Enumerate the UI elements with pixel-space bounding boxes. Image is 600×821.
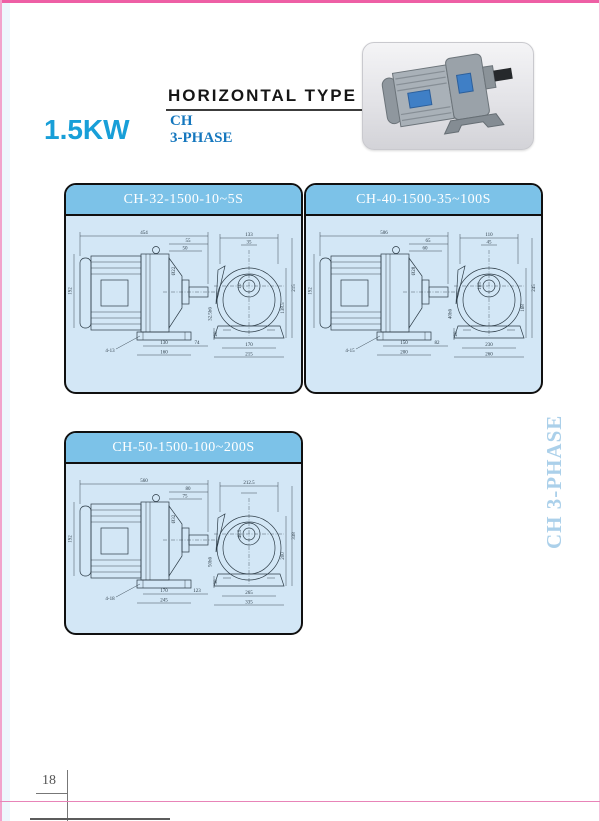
- page-heading: HORIZONTAL TYPE: [168, 86, 357, 106]
- panel-ch32: CH-32-1500-10~5S 454 192: [64, 183, 303, 394]
- dim-front-top2: 45: [487, 241, 493, 246]
- page-number: 18: [42, 773, 56, 789]
- side-view: 454 192 55 50 Ø22 32.5h6: [69, 231, 220, 356]
- dim-top2: 50: [183, 247, 189, 252]
- dim-bottom1: 170: [160, 589, 168, 594]
- dim-top2: 60: [423, 247, 429, 252]
- vertical-series-label: CH 3-PHASE: [542, 415, 567, 549]
- gearbox-label-blue: [457, 73, 474, 93]
- dim-bottom2: 160: [160, 351, 168, 356]
- dim-front-bottom2: 215: [245, 353, 253, 358]
- page-left-tint: [2, 3, 10, 821]
- footer-pink-rule: [0, 801, 600, 802]
- dim-front-right1: 245: [532, 284, 537, 292]
- dimension-drawing: 506 192 65 60 Ø28 40h6: [308, 224, 539, 374]
- dim-bottom3: 74: [195, 341, 201, 346]
- dim-shaft-end: 32.5h6: [209, 307, 214, 321]
- dim-top2: 75: [183, 495, 189, 500]
- dim-front-right1: 215: [292, 284, 297, 292]
- motor-rear-cap-outline: [320, 258, 331, 328]
- dim-height: 192: [309, 287, 314, 295]
- product-photo-card: [362, 42, 534, 150]
- dim-top1: 80: [186, 487, 192, 492]
- dim-bottom2: 245: [160, 599, 168, 604]
- motor-rear-cap-outline: [80, 258, 91, 328]
- series-line2: 3-PHASE: [170, 130, 233, 147]
- output-shaft: [493, 68, 512, 82]
- foot-hole-label: 4-13: [105, 349, 115, 354]
- dim-front-right2: 168: [521, 304, 526, 312]
- front-view: 110 45 105 245 168 230 260: [454, 233, 537, 358]
- page-frame-top: [0, 0, 600, 3]
- dim-bottom2: 200: [400, 351, 408, 356]
- dim-bottom1: 150: [400, 341, 408, 346]
- gusset-outline: [216, 266, 225, 304]
- dim-front-top: 133: [245, 233, 253, 238]
- eyebolt: [393, 247, 400, 254]
- panel-ch32-header: CH-32-1500-10~5S: [66, 185, 301, 216]
- motor-fin-lines: [91, 262, 141, 324]
- dim-total-length: 454: [140, 231, 148, 236]
- base-outline: [137, 332, 191, 340]
- dim-front-right2: 200: [281, 552, 286, 560]
- panel-ch32-title: CH-32-1500-10~5S: [124, 192, 244, 208]
- page-number-vline: [67, 770, 68, 821]
- foot-hole-label: 4-18: [105, 597, 115, 602]
- nameplate-outline: [101, 528, 128, 554]
- panel-ch50-header: CH-50-1500-100~200S: [66, 433, 301, 464]
- gearbox-outline: [141, 254, 169, 332]
- dim-front-bottom1: 170: [245, 343, 253, 348]
- dim-front-right2: 138.5: [281, 302, 286, 314]
- dim-front-bottom2: 260: [485, 353, 493, 358]
- base-outline: [377, 332, 431, 340]
- base-outline: [137, 580, 191, 588]
- dim-bottom3: 82: [435, 341, 441, 346]
- dim-center-label: 48.5: [238, 529, 243, 538]
- dim-center-label: 105: [478, 282, 483, 290]
- dim-front-bottom1: 230: [485, 343, 493, 348]
- panel-ch50-title: CH-50-1500-100~200S: [112, 440, 254, 456]
- dim-shaft-end: 50h6: [209, 557, 214, 568]
- gearbox-outline: [381, 254, 409, 332]
- dim-center-label: 10: [238, 283, 243, 289]
- dim-front-top2: 35: [247, 241, 253, 246]
- power-rating-label: 1.5KW: [44, 114, 130, 146]
- panel-ch40-title: CH-40-1500-35~100S: [356, 192, 491, 208]
- motor-fin-lines: [331, 262, 381, 324]
- gusset-outline: [216, 514, 225, 552]
- dim-shaft-end: 40h6: [449, 309, 454, 320]
- side-view: 560 192 80 75 Ø32 50h6: [69, 479, 220, 604]
- motor-body-outline: [91, 256, 141, 330]
- gearbox-outline: [141, 502, 169, 580]
- gusset-outline: [456, 266, 465, 304]
- eyebolt: [153, 495, 160, 502]
- dimension-drawing: 454 192 55 50 Ø22 32.5h6: [68, 224, 299, 374]
- side-view: 506 192 65 60 Ø28 40h6: [309, 231, 460, 356]
- front-view: 212.5 48.5 338 200 265 335: [214, 481, 297, 606]
- front-view: 133 35 10 215 138.5 170 215: [214, 233, 297, 358]
- series-line1: CH: [170, 113, 233, 130]
- dim-top1: 65: [426, 239, 432, 244]
- motor-rear-cap-outline: [80, 506, 91, 576]
- panel-ch40: CH-40-1500-35~100S 506 192: [304, 183, 543, 394]
- dim-front-top: 212.5: [243, 481, 255, 486]
- series-label: CH 3-PHASE: [170, 113, 233, 147]
- dim-front-bottom1: 265: [245, 591, 253, 596]
- dim-total-length: 560: [140, 479, 148, 484]
- page-number-underline: [36, 793, 67, 794]
- motor-body-outline: [331, 256, 381, 330]
- gear-motor-photo: [363, 43, 533, 149]
- eyebolt: [153, 247, 160, 254]
- nameplate-outline: [341, 280, 368, 306]
- side-label-box: CH 3-PHASE: [540, 384, 576, 549]
- footer-dark-rule: [30, 818, 170, 820]
- dim-height: 192: [69, 535, 74, 543]
- dim-shaft-dia: Ø32: [172, 514, 177, 523]
- dim-height: 192: [69, 287, 74, 295]
- nameplate-blue: [408, 90, 432, 108]
- motor-fin-lines: [91, 510, 141, 572]
- panel-ch50-drawing: 560 192 80 75 Ø32 50h6: [66, 464, 301, 627]
- dimension-drawing: 560 192 80 75 Ø32 50h6: [68, 472, 299, 622]
- panel-ch40-drawing: 506 192 65 60 Ø28 40h6: [306, 216, 541, 379]
- panel-ch32-drawing: 454 192 55 50 Ø22 32.5h6: [66, 216, 301, 379]
- dim-bottom1: 130: [160, 341, 168, 346]
- panel-ch40-header: CH-40-1500-35~100S: [306, 185, 541, 216]
- motor-body-outline: [91, 504, 141, 578]
- dim-shaft-dia: Ø28: [412, 266, 417, 275]
- dim-front-top: 110: [485, 233, 493, 238]
- dim-top1: 55: [186, 239, 192, 244]
- nameplate-outline: [101, 280, 128, 306]
- dim-front-bottom2: 335: [245, 601, 253, 606]
- dim-front-right1: 338: [292, 532, 297, 540]
- dim-total-length: 506: [380, 231, 388, 236]
- heading-underline: [166, 109, 372, 111]
- panel-ch50: CH-50-1500-100~200S 560 192: [64, 431, 303, 635]
- foot-hole-label: 4-15: [345, 349, 355, 354]
- dim-bottom3: 123: [193, 589, 201, 594]
- dim-shaft-dia: Ø22: [172, 266, 177, 275]
